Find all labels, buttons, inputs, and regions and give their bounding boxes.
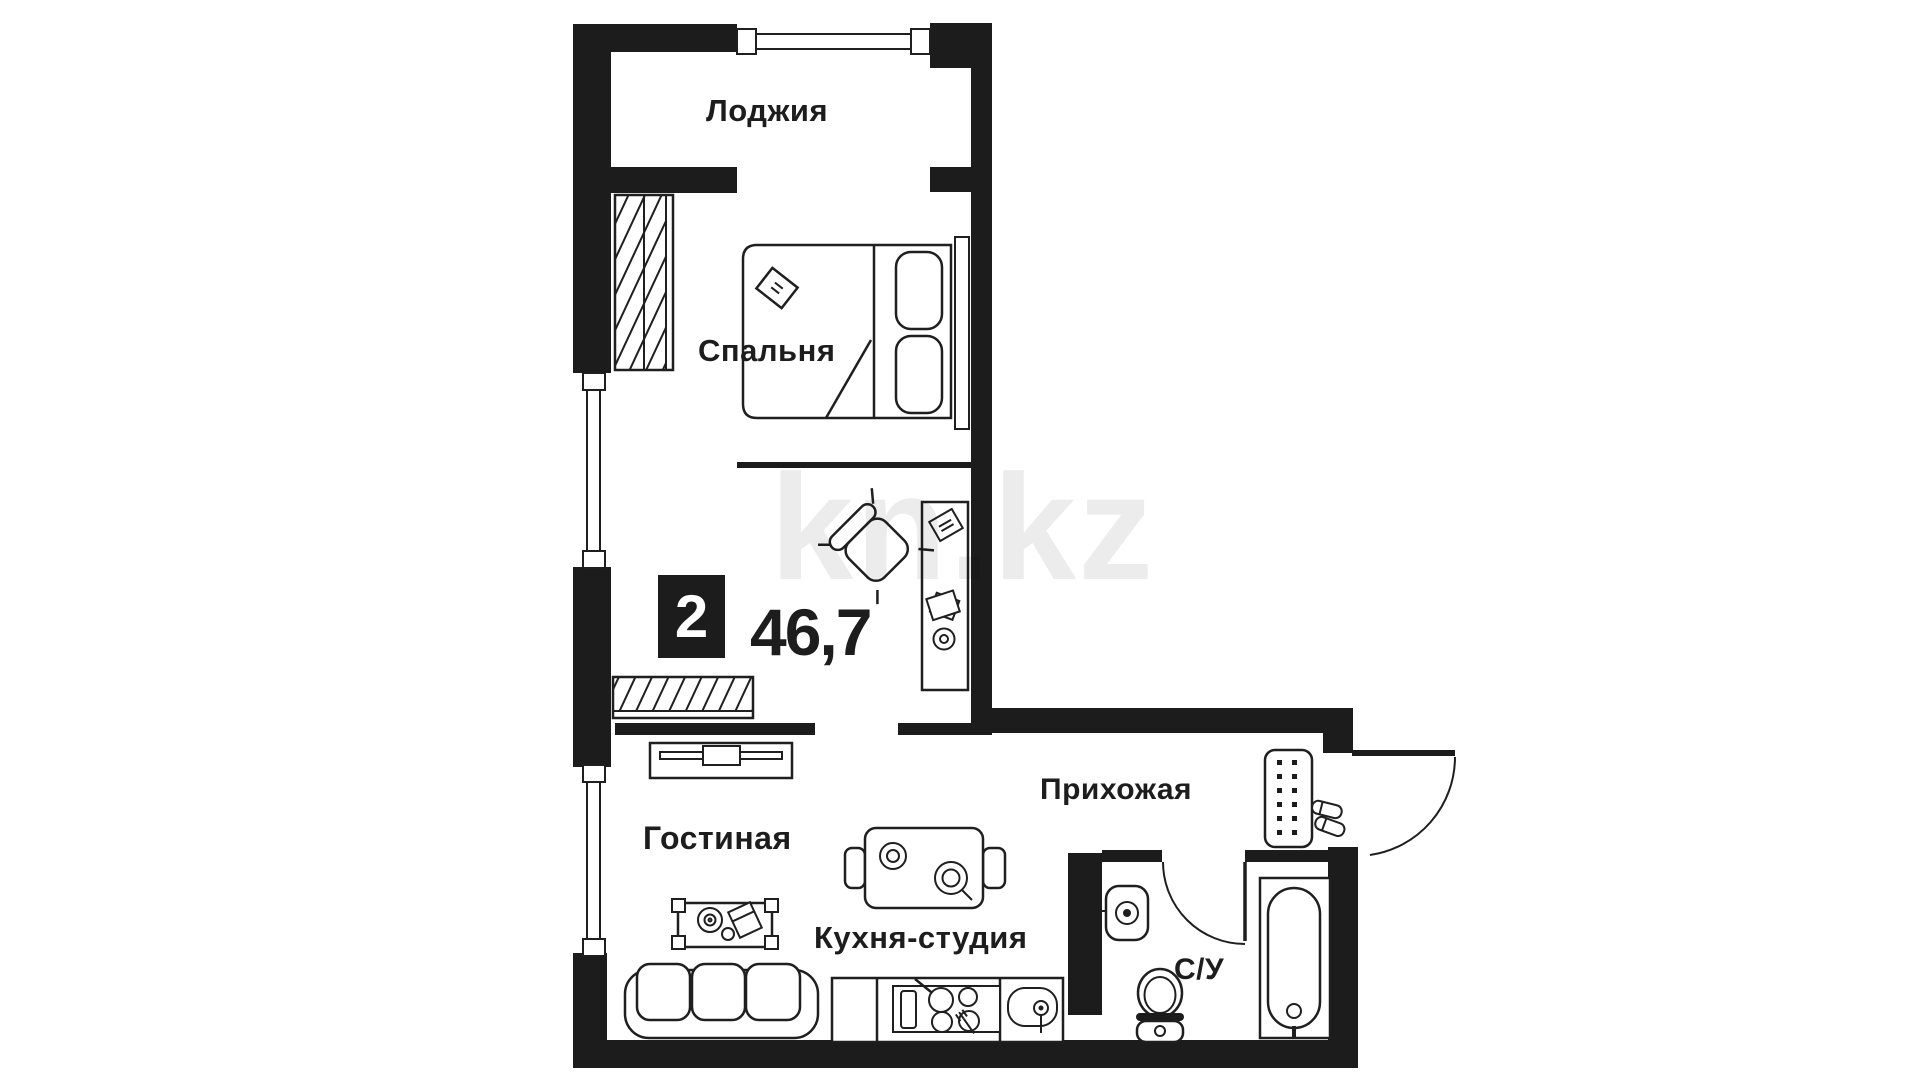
entry-door-swing-icon: [1352, 750, 1455, 855]
wall-left-mid: [573, 567, 611, 767]
kitchen-counter: [832, 978, 1063, 1042]
radiator-icon: [955, 237, 969, 429]
wall-left-upper: [573, 24, 611, 373]
shoe-cabinet-icon: [1265, 750, 1312, 847]
room-label-kitchen: Кухня-студия: [814, 920, 1027, 956]
shelf-hatch-icon: [613, 677, 753, 718]
desk-icon: [922, 502, 968, 690]
wall-loggia-divider-right: [930, 167, 971, 192]
wardrobe-hatch-icon: [615, 195, 673, 370]
room-label-hallway: Прихожая: [1040, 773, 1192, 807]
armchair-icon: [817, 488, 934, 605]
wall-bottom: [573, 1040, 1358, 1068]
floor-plan: kn.kz: [0, 0, 1920, 1080]
area-value: 46,7: [750, 594, 870, 670]
cup-icon: [934, 629, 955, 650]
tv-stand-icon: [650, 743, 792, 778]
sofa-icon: [625, 964, 818, 1038]
floor-plan-drawing: [0, 0, 1920, 1080]
slippers-icon: [1311, 800, 1346, 838]
room-label-living: Гостиная: [643, 820, 792, 857]
window-loggia: [737, 29, 930, 54]
window-bedroom: [583, 373, 605, 568]
wall-kitchen-bath-partition: [1068, 853, 1102, 1015]
double-bed-icon: [743, 245, 951, 418]
wall-bath-top-left: [1102, 850, 1162, 862]
pillow-icon: [896, 252, 942, 329]
wall-bath-right: [1328, 847, 1358, 1068]
room-label-bedroom: Спальня: [698, 333, 835, 369]
washbasin-icon: [1102, 886, 1148, 940]
pillow-icon: [896, 336, 942, 413]
dining-table-icon: [845, 828, 1005, 908]
wall-living-divider-left: [615, 723, 815, 735]
plate-icon: [880, 843, 906, 869]
window-living: [583, 765, 605, 956]
cup-icon: [698, 908, 722, 932]
chair-icon: [845, 848, 865, 888]
wall-bedroom-living-divider: [737, 462, 971, 468]
door-leaf: [1352, 750, 1455, 756]
small-cup-icon: [722, 928, 734, 940]
bathtub-icon: [1260, 878, 1330, 1039]
plate-icon: [935, 862, 967, 894]
wall-right: [971, 23, 992, 733]
rooms-count-badge: 2: [658, 575, 725, 658]
room-label-bathroom: С/У: [1174, 953, 1224, 987]
bath-door-swing-icon: [1163, 862, 1245, 944]
wall-loggia-divider-left: [611, 167, 737, 193]
room-label-loggia: Лоджия: [706, 93, 828, 129]
chair-icon: [983, 848, 1005, 888]
coffee-table-icon: [672, 899, 778, 949]
stove-icon: [893, 979, 1000, 1036]
wall-entry-step: [1323, 708, 1353, 753]
wall-hallway-top: [971, 708, 1330, 733]
wall-living-divider-right: [898, 723, 992, 735]
